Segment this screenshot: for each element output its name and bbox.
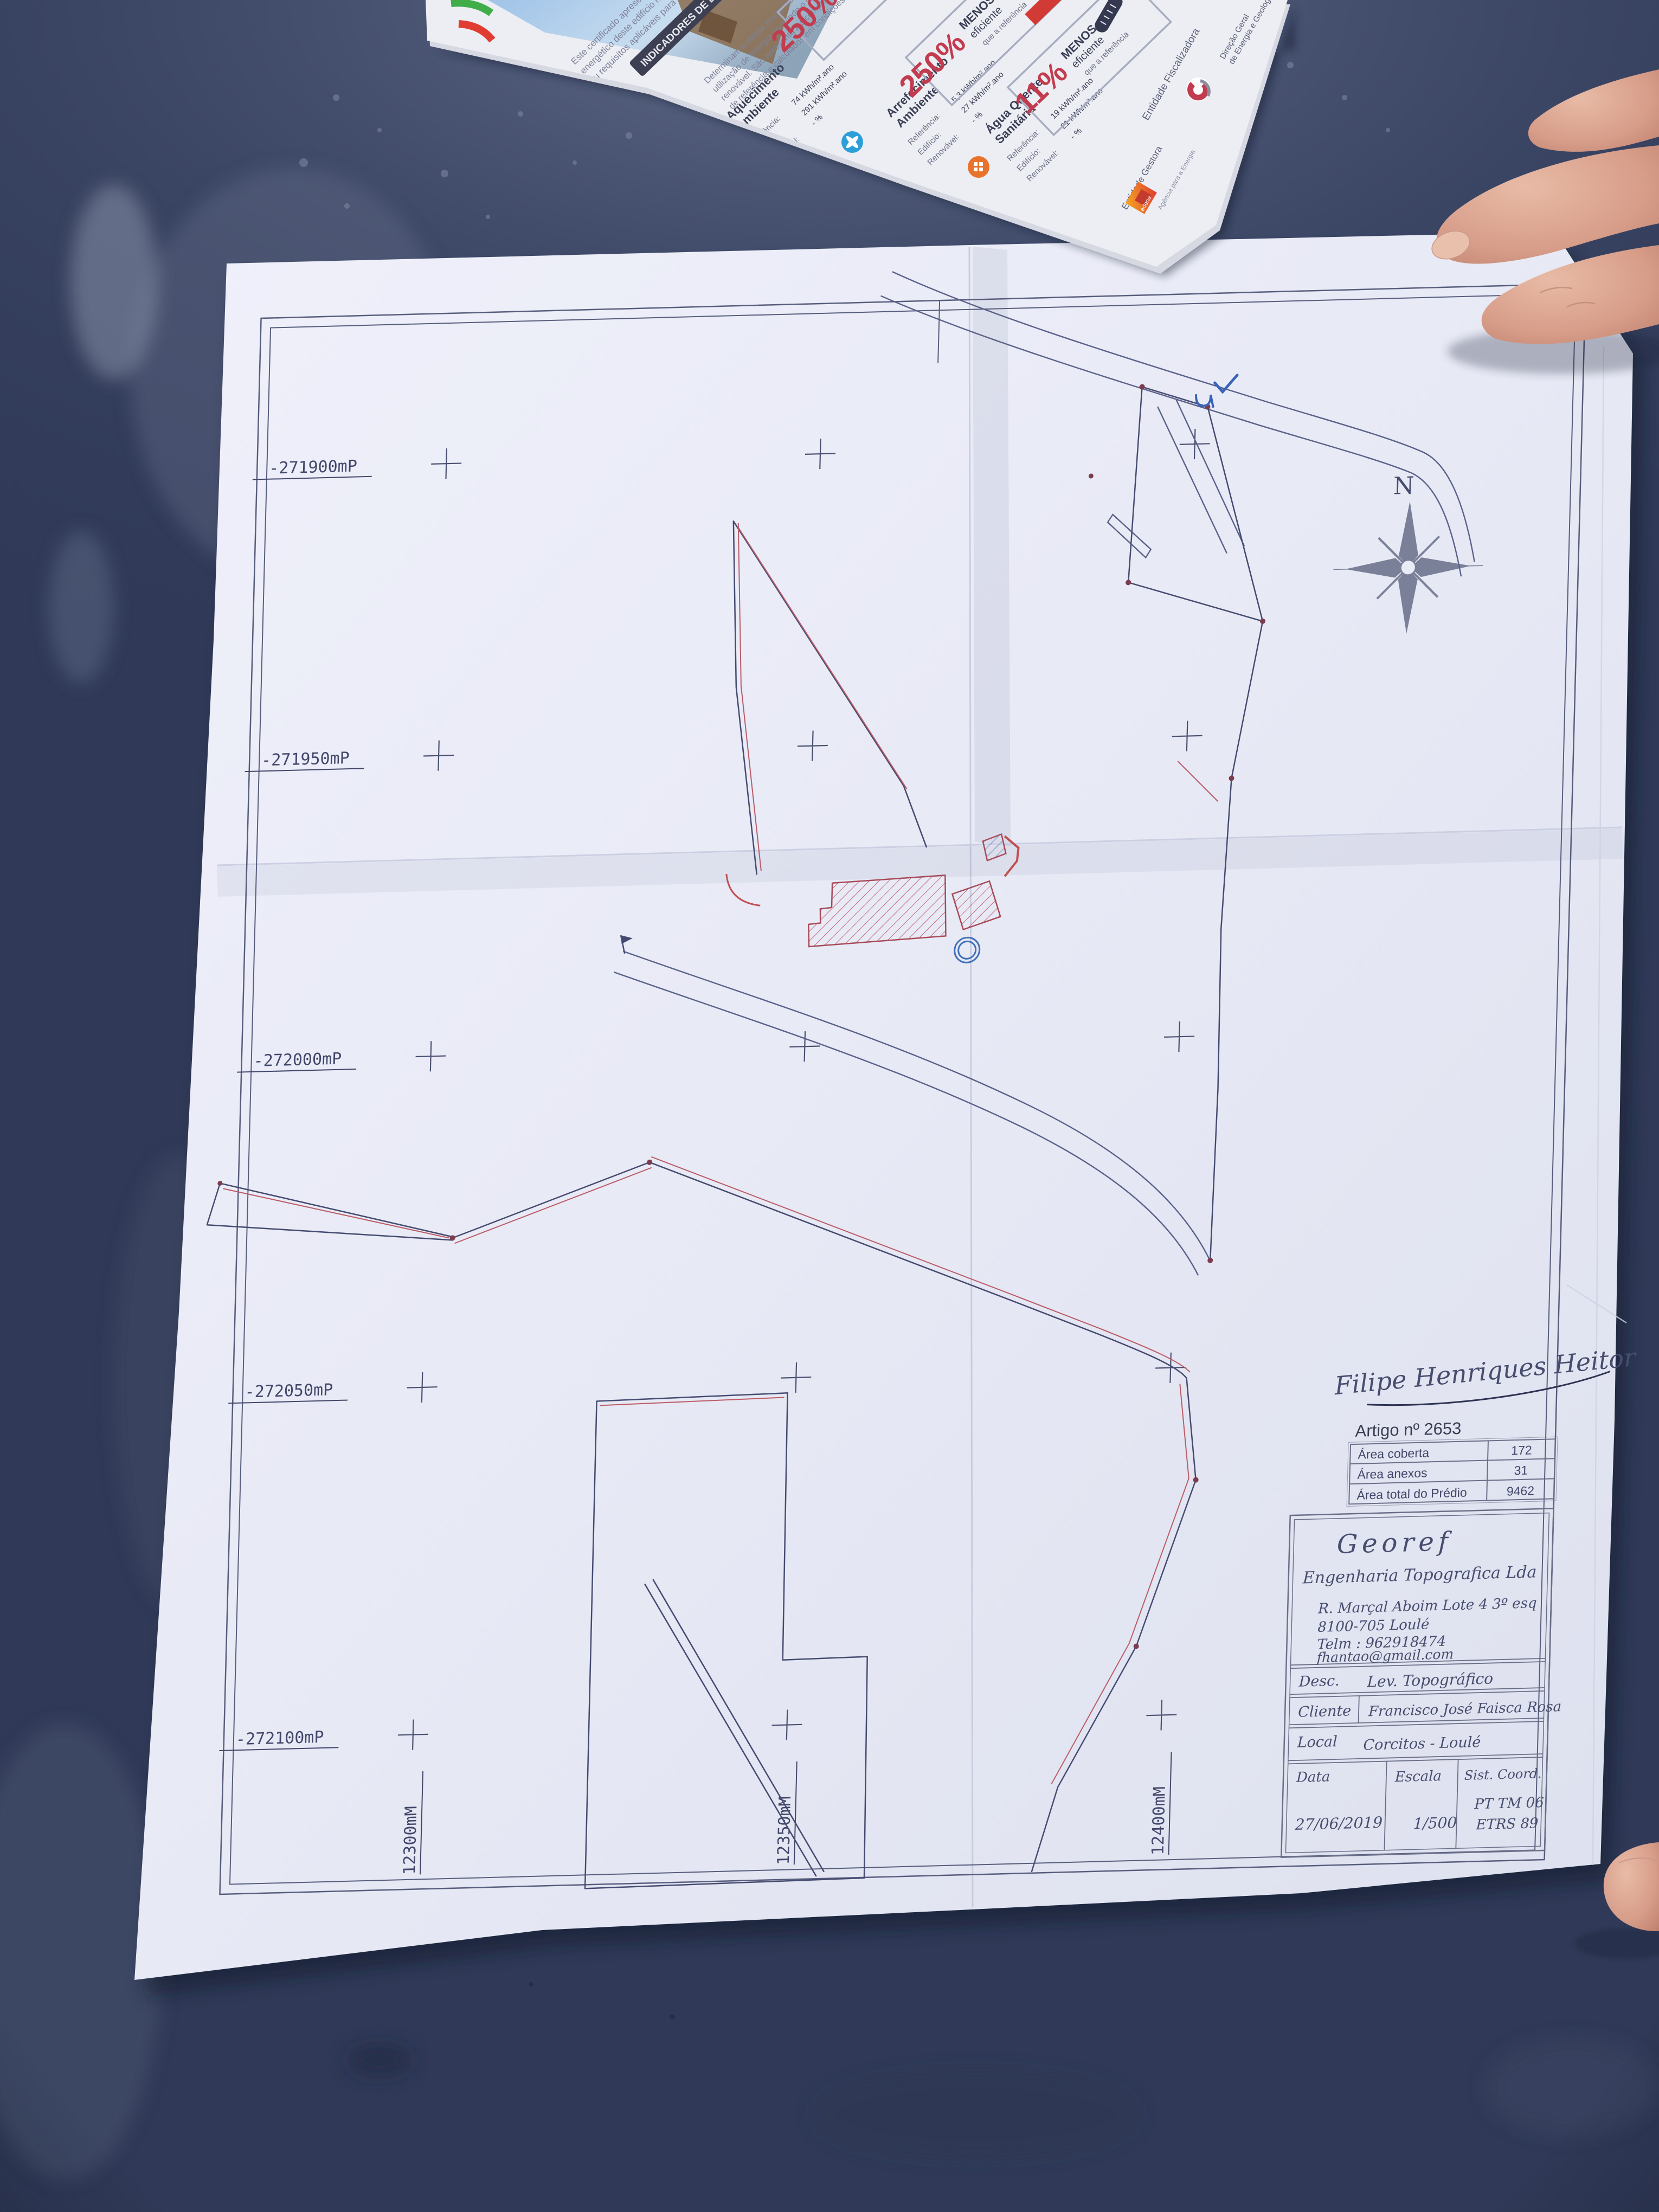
scene-canvas: -271900mP -271950mP -272000mP -272050mP … bbox=[0, 0, 1659, 2212]
photo-scene: -271900mP -271950mP -272000mP -272050mP … bbox=[0, 0, 1659, 2212]
vignette bbox=[0, 0, 1659, 2212]
